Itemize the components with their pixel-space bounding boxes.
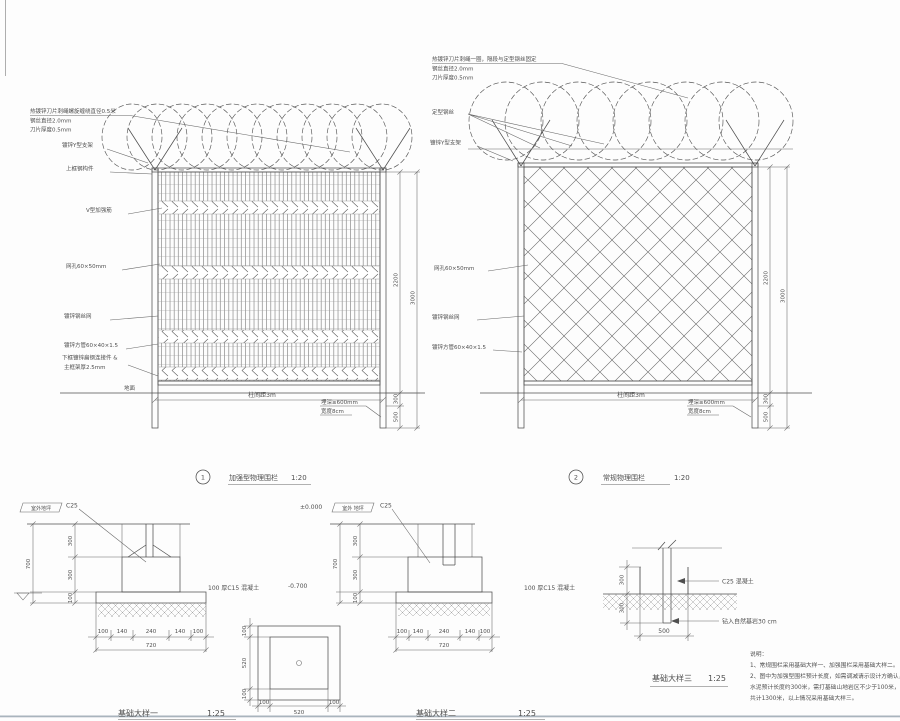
bottom-rail — [158, 381, 380, 385]
dimensions-right: 2200 300 500 3000 — [758, 164, 790, 430]
dim-l100b: 100 — [242, 688, 248, 699]
dimensions-bottom: 100 520 100 — [252, 689, 346, 716]
dimension-width: 500 — [634, 628, 694, 639]
view-title-text: 加强型物理围栏 — [229, 473, 278, 482]
anchor-flares — [128, 545, 171, 557]
view-scale: 1:25 — [207, 709, 225, 718]
label-razor-spec-2: 钢丝直径2.0mm — [30, 117, 71, 125]
label-c25: C25 — [380, 503, 392, 510]
soil-hatch — [98, 603, 206, 617]
callout-c25: C25 混凝土 — [677, 578, 754, 586]
dim-b100a: 100 — [397, 629, 408, 635]
post — [663, 548, 671, 623]
note-line-1: 1、常规围栏采用基础大样一、加强围栏采用基础大样二。 — [750, 661, 899, 669]
dim-b100b: 100 — [329, 700, 340, 706]
dim-b720: 720 — [439, 643, 450, 649]
mesh-panel — [524, 167, 752, 381]
label-embed-width: 宽度8cm — [321, 407, 344, 415]
label-v-rib: V型加强筋 — [86, 206, 112, 214]
dim-300b: 300 — [353, 569, 359, 580]
y-brackets — [128, 128, 410, 170]
dim-l520: 520 — [242, 657, 248, 668]
fence-standard-elevation: 热镀锌刀片刺绳一圈，隔段与定型钢丝固定 钢丝直径2.0mm 刀片厚度0.5mm … — [430, 55, 812, 485]
label-frame-thickness: 主框架厚2.5mm — [64, 363, 105, 371]
bottom-rail — [524, 381, 752, 385]
label-embed-depth: 埋深≥600mm — [321, 398, 358, 406]
footing-slab — [396, 592, 492, 603]
label-mesh: 镀锌钢丝网 — [432, 313, 460, 321]
break-symbol — [658, 540, 676, 550]
dim-post-spacing: 柱间距3m — [248, 391, 276, 399]
label-bottom-connector: 下框镀锌扁钢连接件 & — [62, 354, 118, 362]
label-mesh-size: 网孔60×50mm — [434, 264, 474, 272]
dim-b100b: 100 — [480, 629, 491, 635]
label-c25-concrete: C25 混凝土 — [722, 578, 754, 586]
foundation-detail-2: ±0.000 室外 地坪 C25 100 厚C15 混凝土 300 300 10… — [300, 503, 575, 720]
label-y-bracket: 镀锌Y型支架 — [430, 139, 461, 147]
dim-b520: 520 — [294, 710, 305, 716]
dim-100: 100 — [68, 592, 74, 603]
dim-300a: 300 — [620, 574, 626, 585]
label-tube: 镀锌方管60×40×1.5 — [432, 343, 486, 351]
notes-heading: 说明： — [750, 650, 767, 658]
post-center — [297, 661, 302, 666]
dim-below-2: 500 — [394, 411, 400, 422]
cad-canvas: 热镀锌刀片刺绳螺旋缠绕直径0.5米 钢丝直径2.0mm 刀片厚度0.5mm 镀锌… — [0, 0, 900, 721]
view-title: 基础大样一 1:25 — [118, 708, 236, 720]
dim-mesh-height: 2200 — [394, 273, 400, 287]
dimensions-bottom: 柱间距3m 埋深≥600mm 宽度8cm — [518, 391, 757, 417]
drawing-sheet: 热镀锌刀片刺绳螺旋缠绕直径0.5米 钢丝直径2.0mm 刀片厚度0.5mm 镀锌… — [0, 0, 900, 721]
label-tube: 镀锌方管60×40×1.5 — [64, 341, 118, 349]
dim-below-1: 300 — [764, 393, 770, 404]
dim-l100a: 100 — [242, 625, 248, 636]
right-post — [752, 163, 758, 428]
view-title-text: 常规物理围栏 — [603, 473, 645, 482]
dimensions-bottom: 柱间距3m 埋深≥600mm 宽度8cm — [152, 391, 385, 417]
right-post — [380, 168, 386, 428]
excavation-sides — [122, 524, 180, 557]
callouts-left: 网孔60×50mm 镀锌钢丝网 镀锌方管60×40×1.5 — [432, 264, 528, 352]
dim-b140b: 140 — [175, 629, 186, 635]
label-embed-depth: 埋深≥600mm — [688, 398, 725, 406]
view-title-text: 基础大样三 — [652, 673, 692, 683]
dim-total-height: 3000 — [411, 291, 417, 305]
view-title-2: 2 常规物理围栏 1:20 — [569, 470, 690, 485]
dim-300b: 300 — [68, 569, 74, 580]
post-pocket — [443, 524, 455, 565]
pedestal — [408, 557, 482, 592]
view-title-text: 基础大样一 — [118, 708, 158, 718]
level-flag-label: 室外地坪 — [31, 505, 51, 512]
footing-slab — [96, 592, 206, 603]
dim-b720: 720 — [146, 643, 157, 649]
detail-number: 1 — [201, 474, 205, 482]
note-line-3: 水泥预计长度约300米，需打基础山地岩区不少于100米， — [750, 683, 900, 691]
label-rock-embed: 钻入自然基岩30 cm — [722, 618, 777, 626]
dim-b100a: 100 — [98, 629, 109, 635]
y-brackets — [492, 120, 784, 166]
dim-b140b: 140 — [465, 629, 476, 635]
dim-300b: 300 — [620, 602, 626, 613]
dim-b140a: 140 — [413, 629, 424, 635]
dimensions-left: 100 520 100 — [242, 618, 270, 706]
label-razor-spec-1: 热镀锌刀片刺绳螺旋缠绕直径0.5米 — [30, 107, 116, 115]
dimensions-right: 2200 300 500 3000 — [386, 169, 420, 430]
dimensions-left: 300 300 100 700 — [333, 521, 408, 605]
label-c25: C25 — [66, 503, 78, 510]
dim-below-1: 300 — [394, 393, 400, 404]
notes-block: 说明： 1、常规围栏采用基础大样一、加强围栏采用基础大样二。 2、图中为加强型围… — [750, 650, 900, 702]
dim-300a: 300 — [353, 535, 359, 546]
dim-b240: 240 — [439, 629, 450, 635]
level-value: ±0.000 — [300, 504, 322, 511]
detail-number: 2 — [574, 474, 578, 482]
arrowhead — [671, 618, 679, 624]
soil-hatch — [398, 603, 490, 616]
slab-note: 100 厚C15 混凝土 — [524, 584, 575, 592]
foundation-detail-1: 室外地坪 C25 100 厚C15 混凝土 -0.700 300 300 100… — [14, 503, 308, 720]
view-scale: 1:25 — [708, 674, 726, 683]
label-embed-width: 宽度8cm — [688, 407, 711, 415]
view-title: 基础大样二 1:25 — [416, 708, 545, 720]
label-razor-spec-3: 刀片厚度0.5mm — [30, 126, 71, 134]
arrowhead — [677, 578, 685, 584]
dim-500: 500 — [658, 628, 670, 635]
label-mesh-size: 网孔60×50mm — [66, 262, 106, 270]
dim-b140a: 140 — [117, 629, 128, 635]
dim-700: 700 — [26, 558, 32, 569]
pedestal — [122, 557, 180, 592]
view-title: 基础大样三 1:25 — [650, 673, 728, 687]
dim-100: 100 — [353, 592, 359, 603]
label-y-bracket: 镀锌Y型支架 — [62, 141, 93, 149]
level-value: -0.700 — [288, 583, 308, 590]
callout-rock: 钻入自然基岩30 cm — [671, 618, 777, 626]
level-triangle — [17, 593, 29, 600]
label-razor-spec-2: 钢丝直径2.0mm — [432, 65, 473, 73]
dim-b240: 240 — [146, 629, 157, 635]
level-flag-label: 室外 地坪 — [342, 505, 364, 512]
left-post — [152, 168, 158, 428]
dim-mesh-height: 2200 — [764, 271, 770, 285]
dim-total-height: 3000 — [781, 289, 787, 303]
slab-note: 100 厚C15 混凝土 — [208, 584, 259, 592]
pedestal-outline — [270, 637, 328, 689]
fence-reinforced-elevation: 热镀锌刀片刺绳螺旋缠绕直径0.5米 钢丝直径2.0mm 刀片厚度0.5mm 镀锌… — [30, 104, 425, 485]
dim-300a: 300 — [68, 535, 74, 546]
view-scale: 1:20 — [291, 474, 307, 482]
label-shaping-wire: 定型钢丝 — [432, 108, 455, 116]
view-scale: 1:20 — [674, 474, 690, 482]
view-scale: 1:25 — [518, 709, 536, 718]
label-razor-spec-1: 热镀锌刀片刺绳一圈，隔段与定型钢丝固定 — [432, 55, 537, 63]
post-section — [146, 524, 153, 557]
excavation-sides — [418, 524, 472, 557]
view-title-text: 基础大样二 — [416, 708, 456, 718]
label-razor-spec-3: 刀片厚度0.5mm — [432, 74, 473, 82]
razor-coil-row — [469, 82, 793, 160]
view-title-1: 1 加强型物理围栏 1:20 — [196, 470, 311, 485]
top-rail — [518, 163, 758, 167]
note-line-2: 2、图中为加强型围栏预计长度，如需调减请示设计方确认， — [750, 672, 900, 680]
dim-below-2: 500 — [764, 411, 770, 422]
label-mesh: 镀锌钢丝网 — [64, 312, 92, 320]
label-top-rail: 上框钢构件 — [66, 165, 94, 173]
dim-b100a: 100 — [259, 700, 270, 706]
footing-plan: 100 520 100 100 520 100 — [242, 618, 346, 716]
label-ground: 地面 — [124, 384, 136, 392]
left-post — [518, 163, 524, 428]
note-line-4: 共计1300米，以上情况采用基础大样三。 — [750, 694, 858, 702]
dim-post-spacing: 柱间距3m — [617, 391, 645, 399]
dim-700: 700 — [333, 558, 339, 569]
callouts-top: 热镀锌刀片刺绳一圈，隔段与定型钢丝固定 钢丝直径2.0mm 刀片厚度0.5mm … — [430, 55, 688, 161]
dim-b100b: 100 — [193, 629, 204, 635]
top-rail — [152, 168, 386, 172]
